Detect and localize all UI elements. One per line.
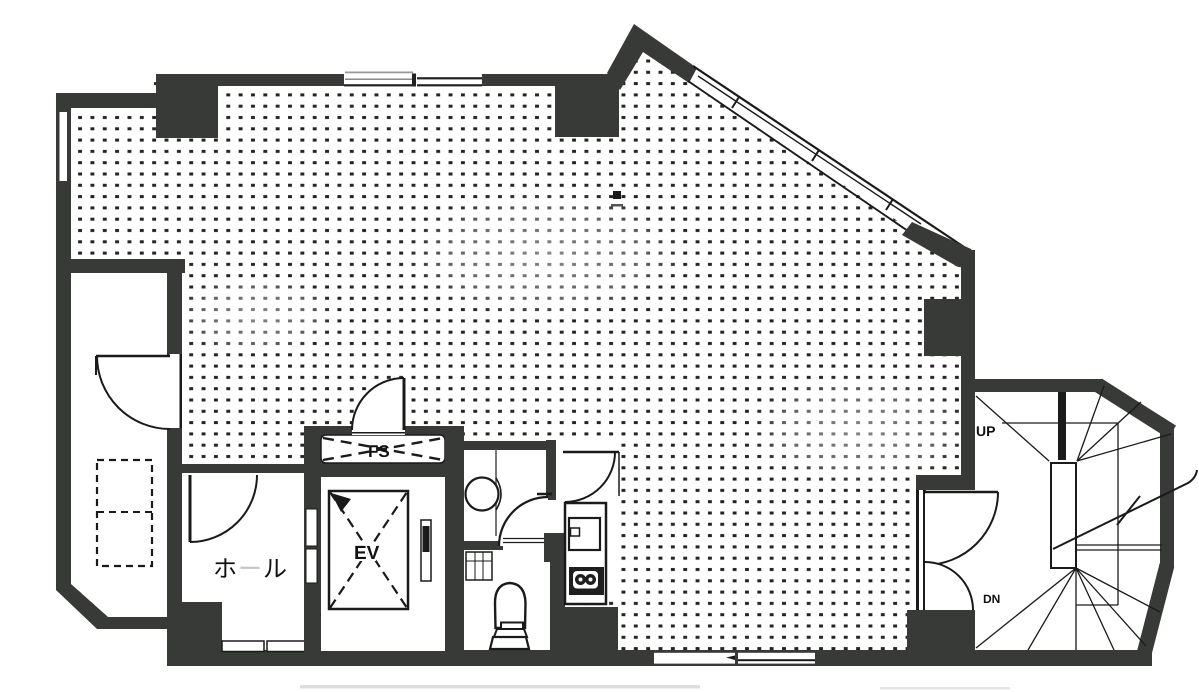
svg-text:ホール: ホール [213, 556, 288, 583]
svg-text:FS: FS [368, 442, 390, 461]
svg-text:EV: EV [354, 543, 380, 564]
svg-text:UP: UP [976, 423, 995, 439]
svg-text:DN: DN [983, 592, 1000, 606]
